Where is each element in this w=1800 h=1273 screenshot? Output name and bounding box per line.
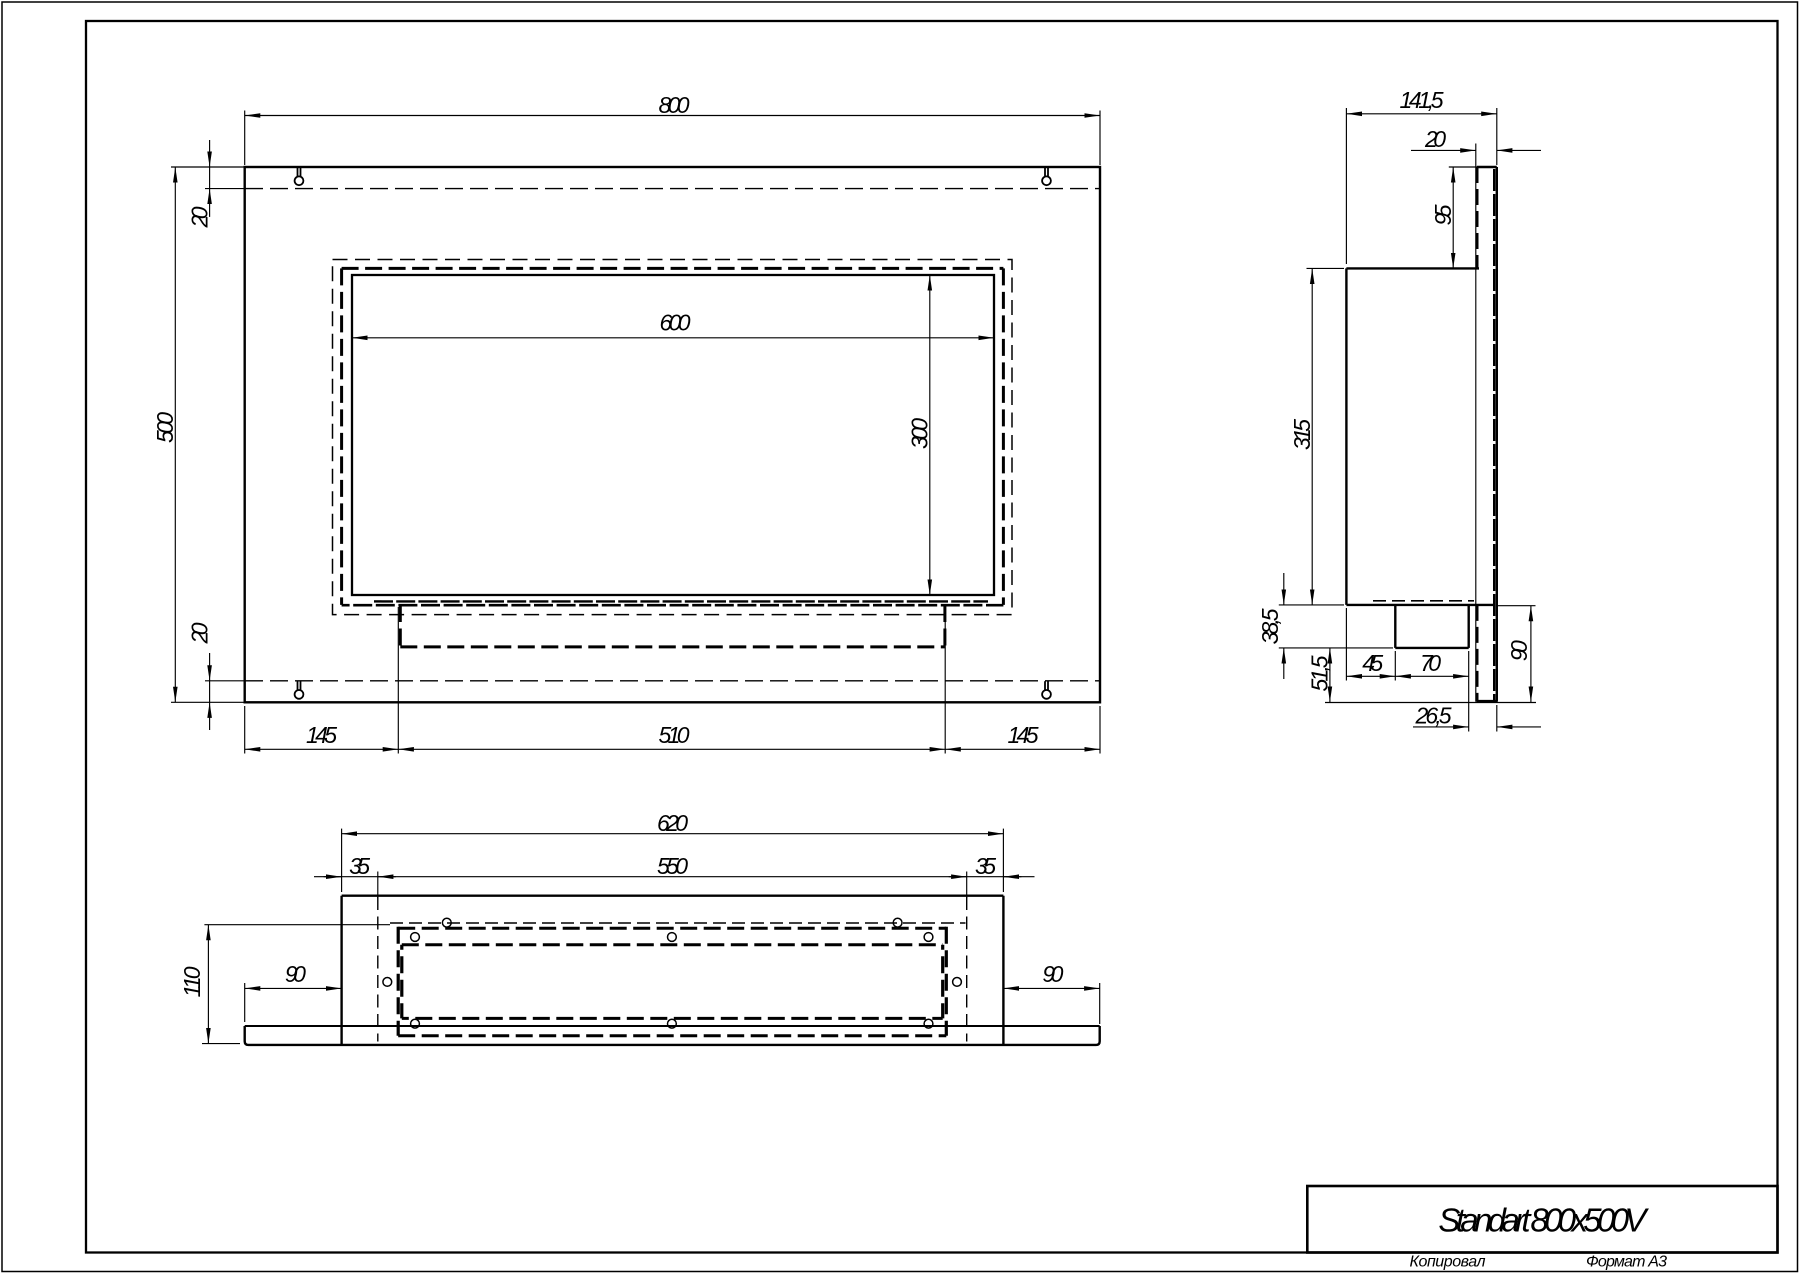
- svg-text:550: 550: [657, 853, 688, 879]
- svg-text:145: 145: [306, 722, 337, 748]
- svg-text:51,5: 51,5: [1307, 655, 1333, 691]
- svg-text:600: 600: [660, 310, 691, 336]
- svg-text:141,5: 141,5: [1400, 87, 1444, 113]
- svg-text:20: 20: [186, 206, 212, 228]
- svg-text:90: 90: [1042, 961, 1063, 987]
- svg-text:Формат А3: Формат А3: [1586, 1253, 1667, 1270]
- svg-text:Копировал: Копировал: [1410, 1253, 1486, 1270]
- svg-text:70: 70: [1420, 650, 1441, 676]
- svg-text:90: 90: [1506, 640, 1532, 661]
- svg-text:38,5: 38,5: [1257, 608, 1283, 644]
- svg-text:300: 300: [907, 418, 933, 449]
- svg-text:20: 20: [1424, 126, 1446, 152]
- svg-text:20: 20: [186, 622, 212, 644]
- svg-text:510: 510: [659, 722, 690, 748]
- svg-text:45: 45: [1362, 650, 1383, 676]
- svg-text:800: 800: [659, 92, 690, 118]
- svg-text:90: 90: [285, 961, 306, 987]
- svg-text:95: 95: [1430, 204, 1456, 225]
- svg-text:26,5: 26,5: [1415, 702, 1452, 728]
- svg-text:500: 500: [152, 412, 178, 443]
- svg-text:35: 35: [349, 853, 370, 879]
- svg-text:620: 620: [657, 810, 688, 836]
- svg-text:315: 315: [1289, 419, 1315, 450]
- svg-text:Standart 800x500V: Standart 800x500V: [1438, 1202, 1649, 1239]
- svg-text:110: 110: [179, 966, 205, 997]
- svg-text:145: 145: [1008, 722, 1039, 748]
- svg-text:35: 35: [975, 853, 996, 879]
